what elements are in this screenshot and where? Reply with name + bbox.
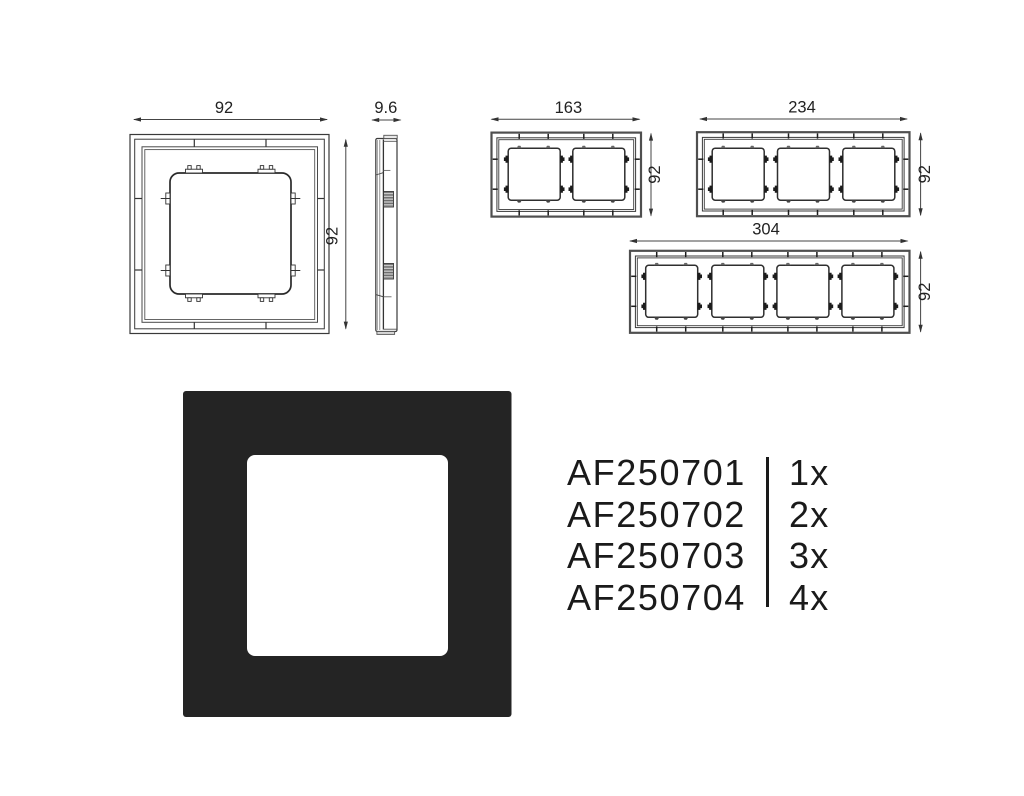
svg-text:92: 92 — [916, 283, 934, 301]
svg-text:234: 234 — [788, 99, 816, 117]
svg-text:92: 92 — [646, 165, 664, 183]
svg-text:304: 304 — [752, 221, 780, 239]
svg-text:163: 163 — [555, 99, 583, 117]
svg-text:92: 92 — [324, 227, 342, 245]
svg-text:9.6: 9.6 — [374, 99, 397, 117]
svg-text:92: 92 — [916, 165, 934, 183]
svg-text:92: 92 — [215, 99, 233, 117]
